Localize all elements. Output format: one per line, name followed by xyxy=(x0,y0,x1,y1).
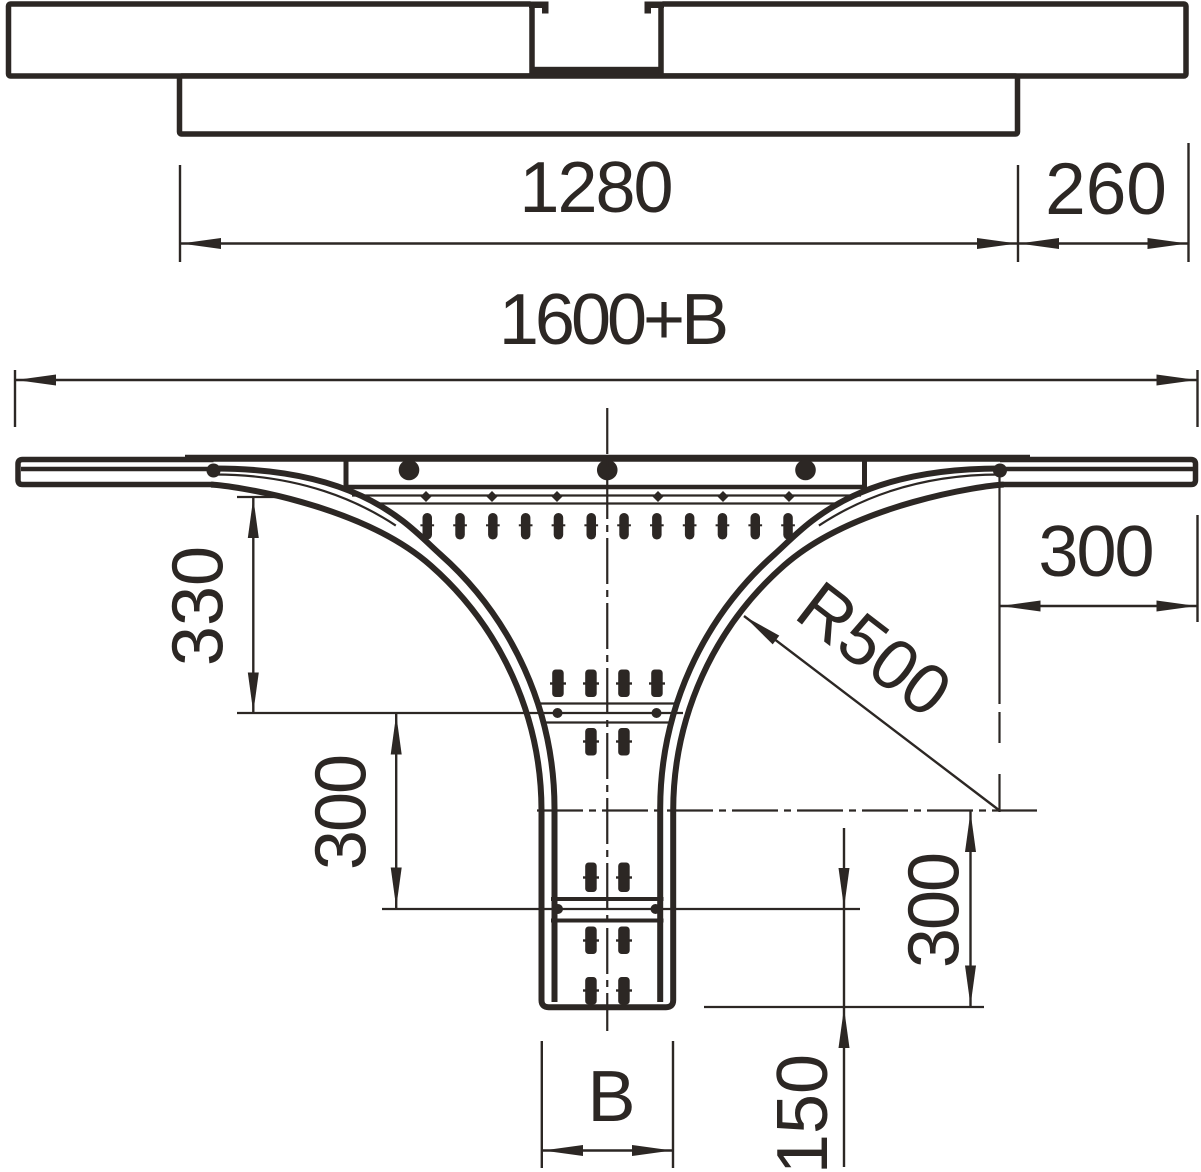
svg-text:B: B xyxy=(587,1057,635,1137)
svg-text:330: 330 xyxy=(159,546,239,666)
svg-text:300: 300 xyxy=(1038,512,1152,592)
svg-text:1600+B: 1600+B xyxy=(499,280,726,360)
svg-text:1280: 1280 xyxy=(519,148,671,228)
svg-text:300: 300 xyxy=(895,854,975,968)
svg-text:260: 260 xyxy=(1045,149,1167,230)
svg-text:300: 300 xyxy=(302,756,382,870)
svg-text:150: 150 xyxy=(763,1054,843,1172)
